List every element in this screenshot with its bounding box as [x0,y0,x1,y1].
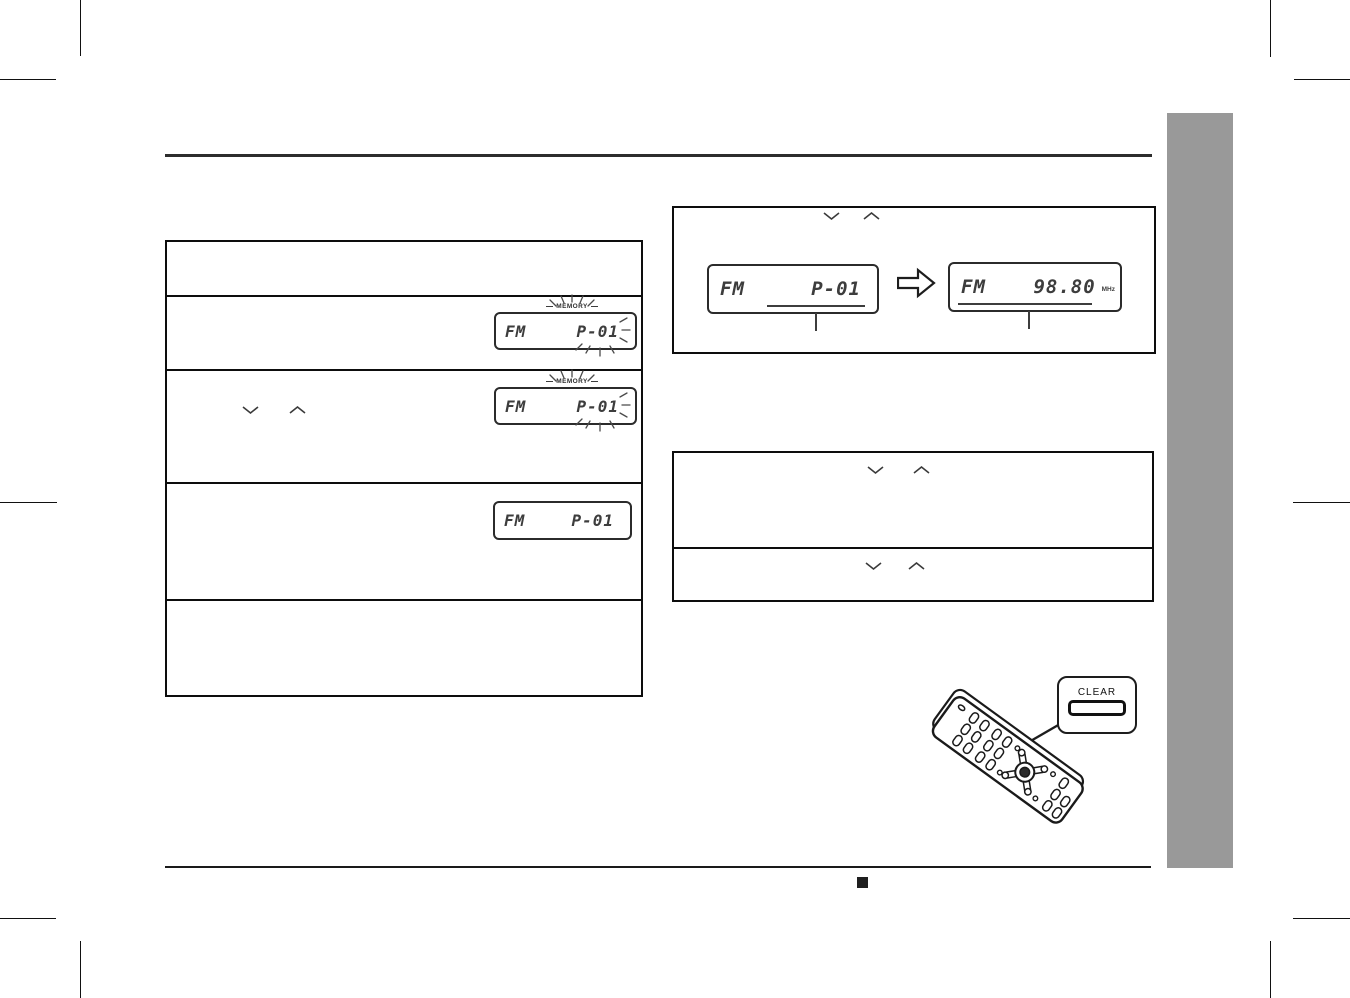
lcd-frequency: 98.80 [1033,276,1095,298]
crop-mark [1270,0,1271,57]
lcd-underline [958,303,1092,305]
flash-rays [512,294,642,364]
clear-button-callout: CLEAR [1057,676,1137,734]
lcd-preset-number: P-01 [811,278,861,300]
table-row-divider [167,599,641,601]
lcd-band: FM [961,276,986,298]
box-row-divider [674,547,1152,549]
remote-control-illustration [930,660,1180,835]
pointer-tick [815,313,817,331]
arrow-right-icon [897,266,937,300]
crop-mark [1270,941,1271,998]
chevron-down-icon [865,561,882,571]
lcd-band: FM [720,278,745,300]
crop-mark [0,79,56,80]
chevron-up-icon [913,465,930,475]
chevron-up-icon [289,405,306,415]
crop-mark [80,941,81,998]
lcd-display-frequency: FM 98.80 MHz [948,262,1122,312]
chevron-up-icon [908,561,925,571]
clear-button-icon [1068,700,1126,716]
lcd-display-stored: FM P-01 [493,501,632,540]
chevron-down-icon [242,405,259,415]
flash-rays [512,369,642,439]
crop-mark [0,502,57,503]
bottom-rule [165,866,1151,868]
table-row-divider [167,482,641,484]
crop-mark [1293,502,1350,503]
lcd-band: FM [504,511,525,530]
crop-mark [0,918,56,919]
page-footer-marker [857,877,868,888]
lcd-preset-number: P-01 [571,511,614,530]
pointer-tick [1028,311,1030,329]
lcd-underline [767,305,865,307]
chevron-down-icon [823,211,840,221]
crop-mark [1294,79,1350,80]
manual-page: FM P-01 MEMORY FM P-01 MEMORY FM P-01 [0,0,1350,998]
lcd-unit: MHz [1102,286,1115,293]
crop-mark [80,0,81,56]
chevron-down-icon [867,465,884,475]
top-rule [165,154,1152,157]
clear-button-label: CLEAR [1078,687,1116,698]
lcd-display-preset: FM P-01 [707,264,879,314]
crop-mark [1293,918,1350,919]
chevron-up-icon [863,211,880,221]
